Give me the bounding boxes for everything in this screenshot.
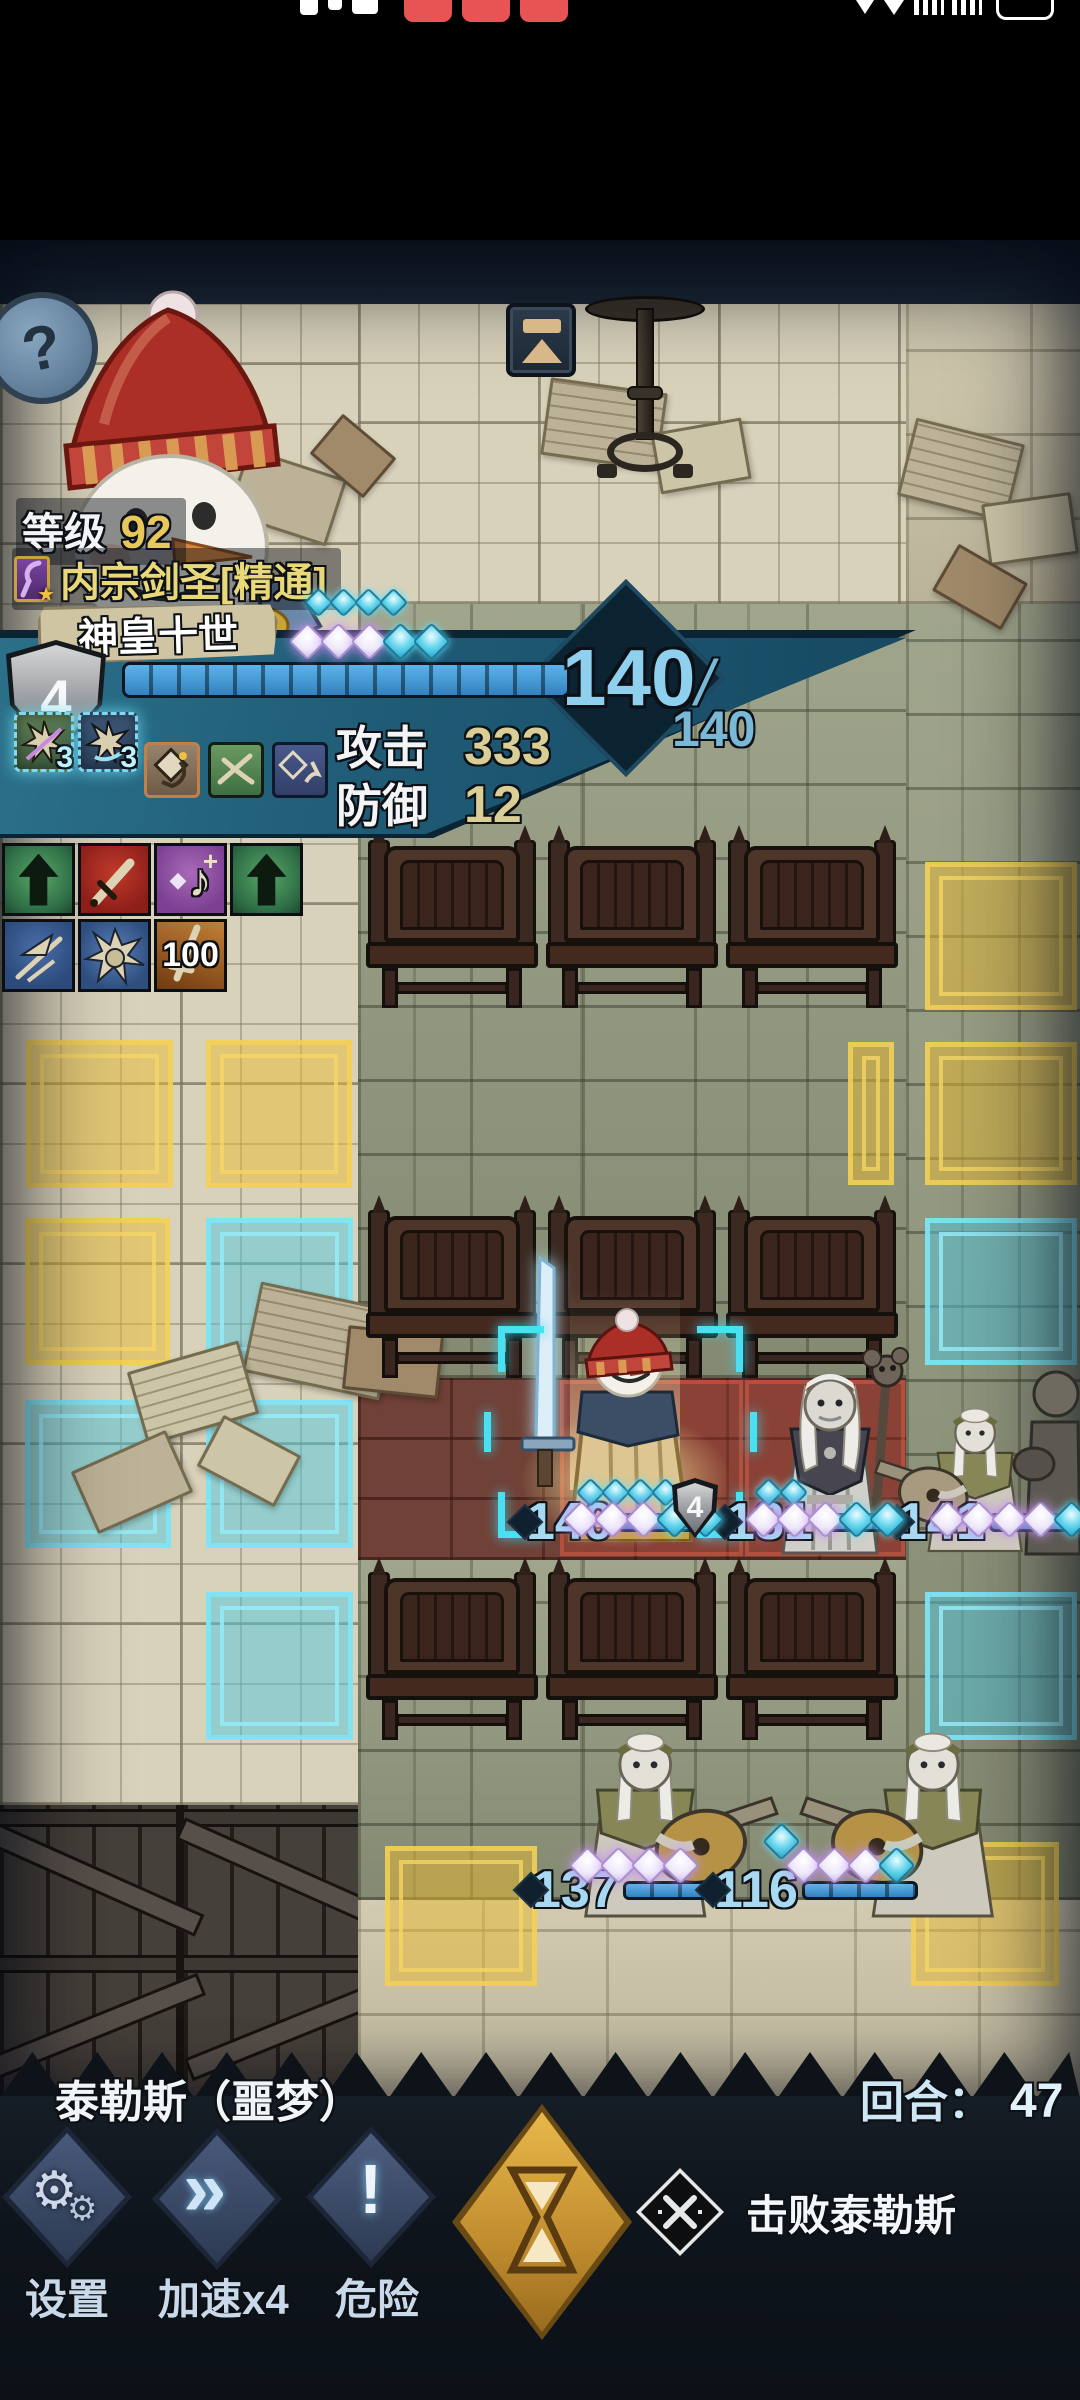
- hud-hp-bar: [122, 662, 570, 698]
- buff-sword-icon: [78, 843, 151, 916]
- round-counter: 回合： 47: [860, 2066, 1063, 2130]
- buff-stack-count: 100: [162, 936, 219, 975]
- class-star-icon: ★: [37, 582, 55, 607]
- battery-icon: [996, 0, 1054, 20]
- status-icon: [884, 0, 904, 15]
- move-cell-yellow[interactable]: [25, 1218, 170, 1365]
- music-plus-glyph: +: [203, 846, 218, 877]
- signal-icon: [952, 0, 982, 15]
- move-cell-yellow[interactable]: [925, 862, 1077, 1010]
- signal-icon: [914, 0, 944, 15]
- hourglass-icon: [497, 2162, 587, 2282]
- buff-sword-100-icon: 100: [154, 919, 227, 992]
- location-label: 泰勒斯（噩梦）: [55, 2066, 363, 2130]
- attack-value: 333: [464, 717, 551, 777]
- notification-icon: [462, 0, 510, 22]
- skill-blue-gem[interactable]: [272, 742, 328, 798]
- energy-gem-icon: [661, 1846, 699, 1884]
- danger-label: 危险: [335, 2266, 419, 2327]
- skill-gem-hook[interactable]: [144, 742, 200, 798]
- pew: [546, 826, 718, 1008]
- buff-banner-icon: [2, 919, 75, 992]
- move-cell-yellow[interactable]: [848, 1042, 894, 1185]
- collapse-icon: [523, 319, 561, 333]
- notification-icon: [520, 0, 568, 22]
- defense-label: 防御: [336, 770, 428, 836]
- objective-icon: [636, 2168, 724, 2256]
- collapse-button[interactable]: [506, 303, 576, 377]
- skill-burst-blue[interactable]: 3: [78, 712, 138, 772]
- buff-attack-up-icon: [230, 843, 303, 916]
- round-label: 回合：: [860, 2066, 992, 2130]
- buff-attack-up-icon: [2, 843, 75, 916]
- collapse-icon-triangle: [522, 339, 562, 363]
- defense-row: 防御 12: [336, 770, 522, 836]
- hud-energy-gems-top: [306, 592, 406, 613]
- status-icon: [856, 0, 874, 14]
- pew: [546, 1558, 718, 1740]
- energy-gems: [932, 1506, 1080, 1533]
- pew: [726, 1558, 898, 1740]
- clock-fragment: [352, 0, 378, 14]
- hud-hp-max: 140: [672, 700, 755, 758]
- speed-label: 加速x4: [158, 2266, 289, 2327]
- buff-fist-icon: [78, 919, 151, 992]
- move-cell-yellow[interactable]: [206, 1040, 352, 1188]
- move-cell-yellow[interactable]: [385, 1846, 537, 1986]
- energy-gems: [572, 1852, 696, 1879]
- gear-icon-small: ⚙: [67, 2189, 97, 2229]
- game-screen: 140 4 181 141 137 116 ?: [0, 0, 1080, 2400]
- move-cell-yellow[interactable]: [26, 1040, 173, 1188]
- attack-label: 攻击: [336, 712, 428, 778]
- danger-icon: !: [359, 2149, 382, 2229]
- paper-debris: [981, 492, 1079, 566]
- objective-row[interactable]: 击败泰勒斯: [636, 2168, 956, 2256]
- skill-burst-green[interactable]: 3: [14, 712, 74, 772]
- class-icon: ★: [14, 556, 50, 602]
- hp-fill: [802, 1881, 918, 1900]
- defense-value: 12: [464, 775, 522, 835]
- wood-wall: [0, 1805, 358, 2100]
- energy-gems: [578, 1482, 678, 1503]
- candelabra: [585, 296, 705, 491]
- clock-fragment: [328, 0, 342, 10]
- move-cell-yellow[interactable]: [925, 1042, 1077, 1185]
- clock-fragment: [300, 0, 318, 15]
- hud-energy-gems-bottom: [292, 628, 447, 655]
- energy-gems: [748, 1506, 903, 1533]
- energy-gems: [788, 1852, 912, 1879]
- energy-gem-icon: [877, 1846, 915, 1884]
- class-row: ★ 内宗剑圣[精通]: [12, 548, 341, 610]
- round-value: 47: [1010, 2074, 1063, 2129]
- objective-text: 击败泰勒斯: [746, 2182, 956, 2243]
- music-gem-glyph: ◆: [170, 867, 187, 893]
- attack-row: 攻击 333: [336, 712, 551, 778]
- notification-icon: [404, 0, 452, 22]
- status-bar: [0, 0, 1080, 240]
- energy-gem-icon: [868, 1500, 906, 1538]
- class-name: 内宗剑圣[精通]: [60, 550, 327, 608]
- pew: [366, 1558, 538, 1740]
- skill-charges: 3: [56, 741, 73, 775]
- energy-gems: [756, 1482, 806, 1503]
- energy-gem-icon: [1052, 1500, 1080, 1538]
- energy-gems: [766, 1828, 797, 1855]
- skill-green-blade[interactable]: [208, 742, 264, 798]
- energy-gem-icon: [379, 588, 409, 618]
- move-cell-cyan[interactable]: [206, 1592, 353, 1740]
- energy-gem-icon: [412, 622, 450, 660]
- skill-charges: 3: [120, 741, 137, 775]
- pew: [366, 826, 538, 1008]
- buff-music-gem-icon: ◆ ♪ +: [154, 843, 227, 916]
- pew: [726, 826, 898, 1008]
- settings-label: 设置: [25, 2266, 109, 2327]
